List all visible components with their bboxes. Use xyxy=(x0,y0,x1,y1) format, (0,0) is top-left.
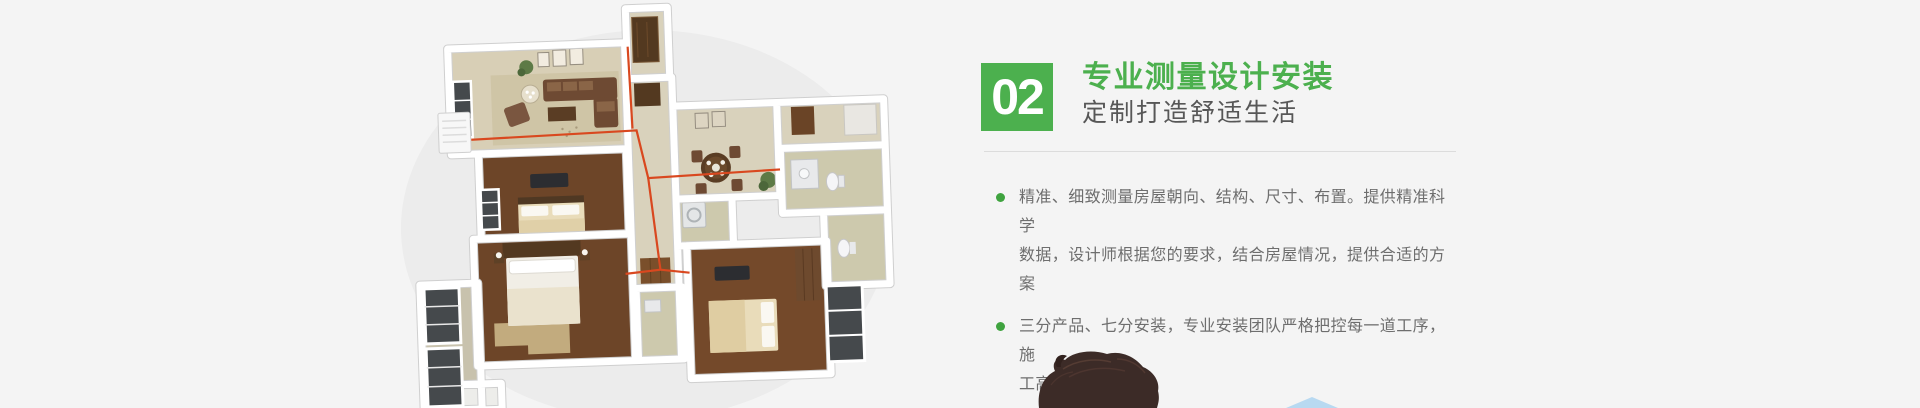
blue-triangle-decoration xyxy=(1286,397,1338,408)
person-photo xyxy=(1033,351,1167,408)
floor-plan-image xyxy=(395,0,905,408)
bullet-dot-icon xyxy=(996,193,1005,202)
section-subtitle: 定制打造舒适生活 xyxy=(1082,100,1298,128)
step-number: 02 xyxy=(991,72,1043,122)
step-number-badge: 02 xyxy=(981,63,1053,131)
list-item-text: 数据，设计师根据您的要求，结合房屋情况，提供合适的方案 xyxy=(1019,241,1459,299)
section-title: 专业测量设计安装 xyxy=(1082,61,1334,94)
bullet-dot-icon xyxy=(996,322,1005,331)
list-item-text: 精准、细致测量房屋朝向、结构、尺寸、布置。提供精准科学 xyxy=(1019,183,1459,241)
list-item: 精准、细致测量房屋朝向、结构、尺寸、布置。提供精准科学 数据，设计师根据您的要求… xyxy=(984,183,1459,299)
divider xyxy=(984,151,1456,152)
section-step-02: 02 专业测量设计安装 定制打造舒适生活 精准、细致测量房屋朝向、结构、尺寸、布… xyxy=(0,0,1920,408)
